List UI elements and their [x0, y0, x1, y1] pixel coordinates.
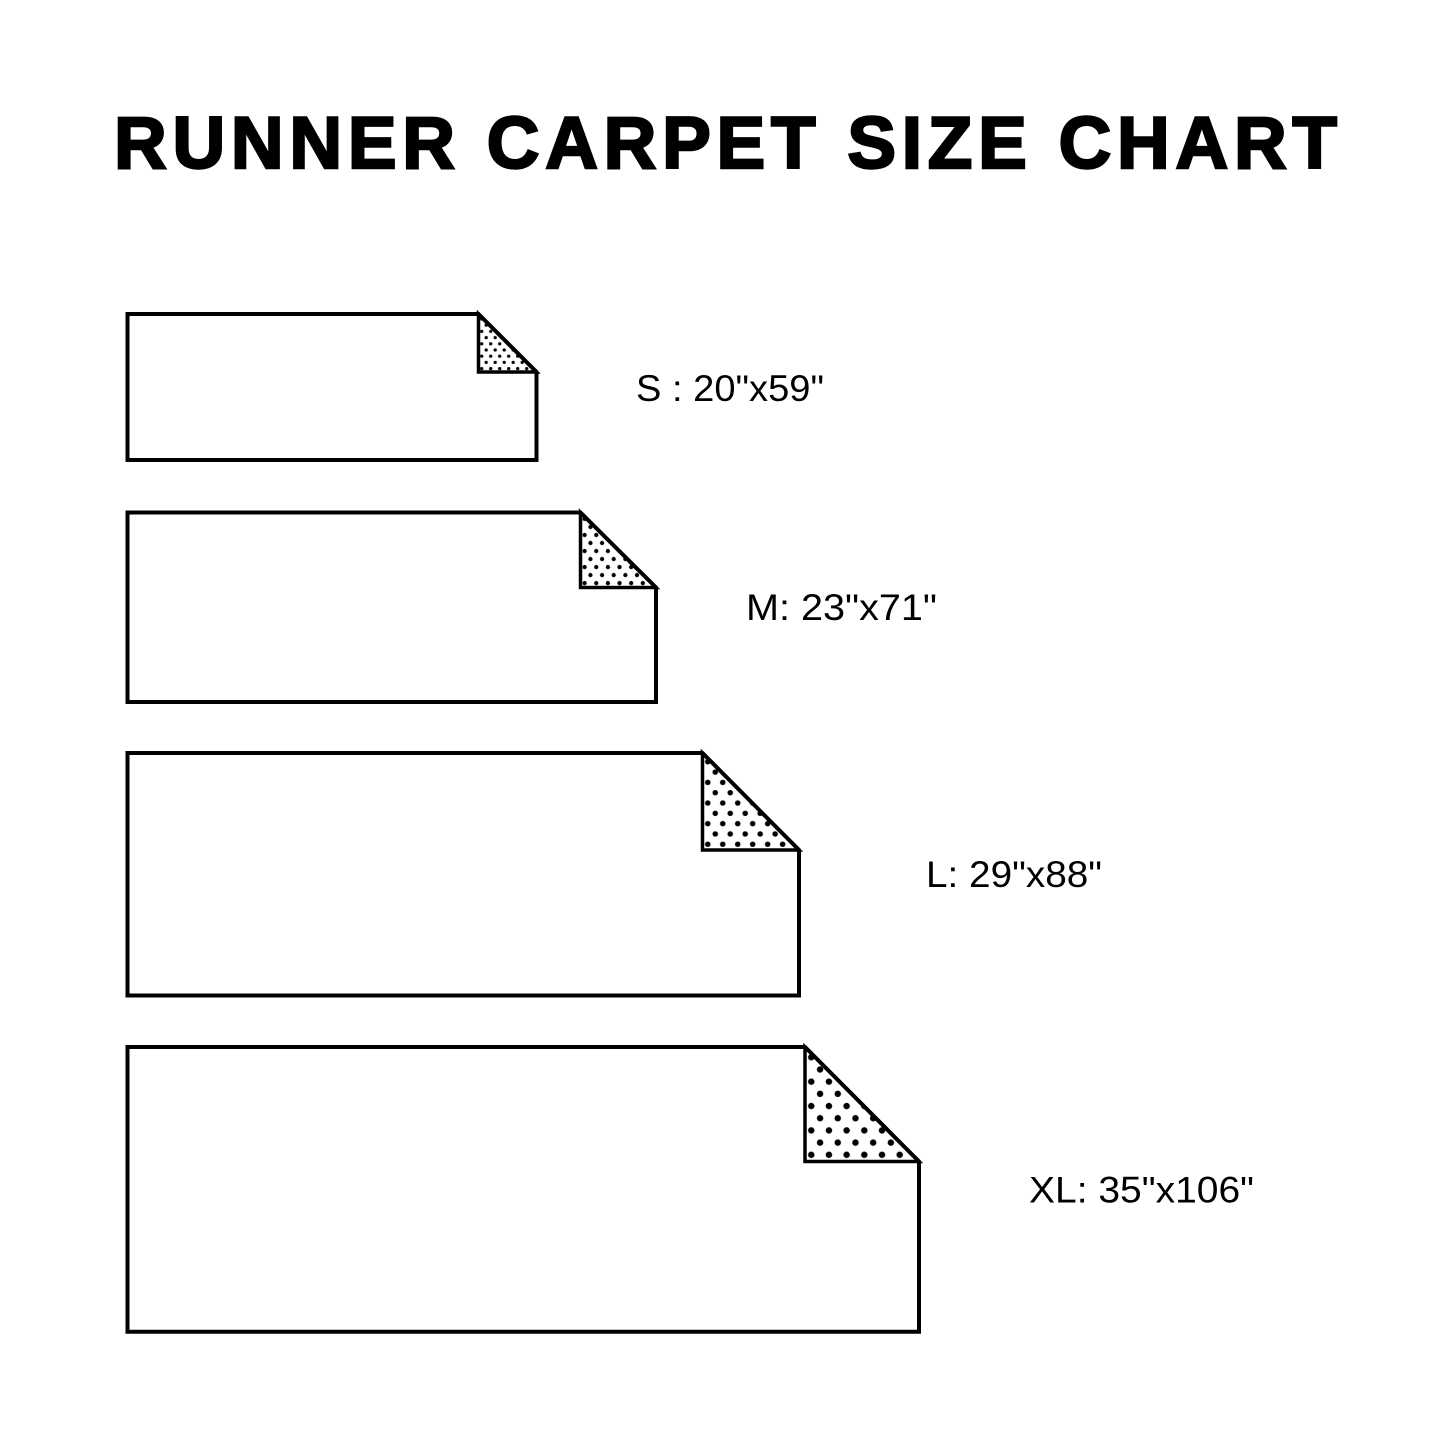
svg-text:XL: 35"x106": XL: 35"x106"	[1029, 1170, 1254, 1211]
svg-text:RUNNER CARPET SIZE CHART: RUNNER CARPET SIZE CHART	[114, 103, 1337, 184]
svg-text:L: 29"x88": L: 29"x88"	[926, 854, 1102, 895]
svg-text:M: 23"x71": M: 23"x71"	[746, 587, 937, 628]
svg-text:S : 20"x59": S : 20"x59"	[636, 368, 824, 409]
